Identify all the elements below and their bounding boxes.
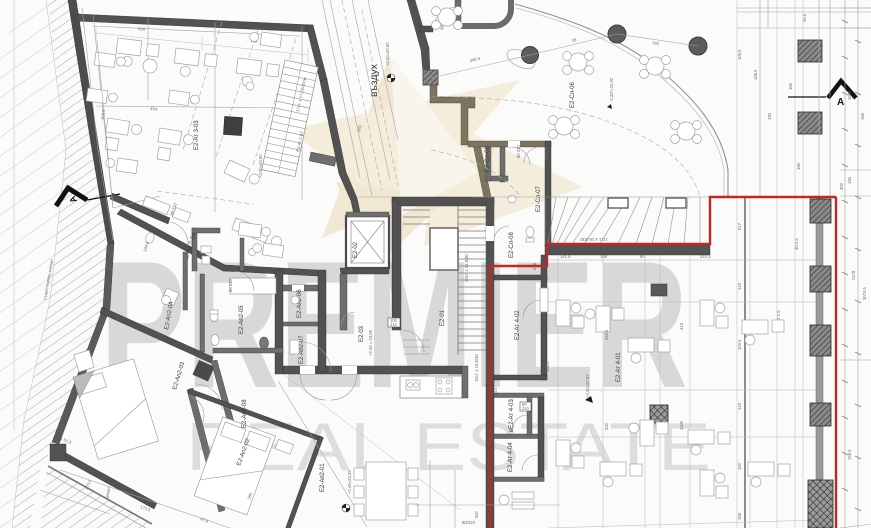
svg-text:160: 160 — [847, 176, 852, 184]
svg-text:A: A — [837, 97, 844, 108]
svg-text:E2-Сл-06: E2-Сл-06 — [570, 81, 576, 108]
svg-text:E2-Ап2-05: E2-Ап2-05 — [239, 305, 245, 334]
svg-text:80 210: 80 210 — [516, 145, 521, 158]
svg-text:454: 454 — [150, 106, 158, 112]
svg-text:90 210: 90 210 — [544, 147, 549, 160]
svg-text:вE2-Ат 4-03: вE2-Ат 4-03 — [509, 399, 515, 432]
svg-text:552.5: 552.5 — [604, 329, 609, 340]
svg-text:168: 168 — [600, 254, 608, 259]
svg-text:E2-02: E2-02 — [353, 241, 359, 258]
svg-text:+2,32=22,92: +2,32=22,92 — [585, 374, 590, 398]
svg-text:20ст. x 16,9/30: 20ст. x 16,9/30 — [464, 254, 469, 282]
svg-text:413: 413 — [679, 322, 684, 330]
svg-text:104.5: 104.5 — [737, 339, 742, 350]
svg-text:162: 162 — [652, 40, 660, 46]
svg-text:210: 210 — [522, 406, 530, 411]
svg-text:143: 143 — [737, 402, 742, 410]
svg-text:252.4: 252.4 — [545, 361, 550, 372]
svg-text:1095: 1095 — [847, 90, 852, 100]
svg-text:17ст. x 16,5/30: 17ст. x 16,5/30 — [580, 237, 608, 242]
svg-text:E2-01: E2-01 — [440, 309, 446, 326]
svg-text:160: 160 — [788, 82, 793, 90]
svg-text:E2-Сл-07: E2-Сл-07 — [536, 185, 542, 212]
svg-text:1100: 1100 — [679, 420, 684, 430]
svg-text:E2-Ап2-08: E2-Ап2-08 — [242, 399, 248, 428]
svg-text:141.5: 141.5 — [560, 254, 571, 259]
svg-text:E2-Ап2-01: E2-Ап2-01 — [320, 463, 326, 492]
svg-text:190: 190 — [767, 112, 772, 120]
svg-text:+0.00=20.60: +0.00=20.60 — [385, 42, 390, 66]
svg-text:310.3: 310.3 — [700, 254, 711, 259]
svg-text:-2,32*=22,92: -2,32*=22,92 — [609, 77, 614, 102]
svg-text:WC: WC — [474, 511, 479, 518]
svg-text:2478: 2478 — [851, 270, 856, 280]
svg-text:15ст. x 16,6/30: 15ст. x 16,6/30 — [474, 354, 479, 382]
svg-text:143: 143 — [737, 282, 742, 290]
svg-text:E2-03: E2-03 — [359, 325, 365, 342]
svg-text:3074.5: 3074.5 — [862, 287, 867, 300]
svg-text:300: 300 — [839, 182, 844, 190]
svg-text:80: 80 — [640, 254, 645, 259]
svg-text:2·1 6: 2·1 6 — [776, 310, 781, 320]
svg-text:90/210: 90/210 — [462, 520, 475, 525]
svg-text:210: 210 — [390, 322, 398, 327]
svg-text:E2-Сл-08: E2-Сл-08 — [509, 231, 515, 258]
svg-text:80 210: 80 210 — [228, 279, 233, 292]
svg-text:517: 517 — [737, 222, 742, 230]
svg-text:158: 158 — [737, 512, 742, 520]
svg-text:332: 332 — [604, 422, 609, 430]
svg-text:30.4 5: 30.4 5 — [794, 238, 799, 250]
svg-text:E2-Ат 4-01: E2-Ат 4-01 — [616, 352, 622, 382]
svg-text:158.5: 158.5 — [847, 449, 852, 460]
svg-text:108.5: 108.5 — [753, 69, 758, 80]
svg-text:+2.49=23,09: +2.49=23,09 — [347, 470, 352, 494]
svg-text:105.5: 105.5 — [737, 49, 742, 60]
svg-text:E2-Ап2-06: E2-Ап2-06 — [297, 289, 303, 318]
svg-text:въздух: въздух — [368, 63, 380, 97]
svg-text:46.5: 46.5 — [802, 13, 807, 22]
svg-text:192: 192 — [737, 462, 742, 470]
svg-text:195: 195 — [860, 112, 865, 120]
svg-text:E2-Ат 4-04: E2-Ат 4-04 — [508, 442, 514, 472]
svg-text:+2.49 = 23,09: +2.49 = 23,09 — [368, 329, 373, 356]
svg-text:190: 190 — [796, 162, 801, 170]
svg-text:320: 320 — [138, 26, 146, 32]
svg-text:133.5: 133.5 — [493, 387, 498, 398]
svg-text:E2-Ат 4-02: E2-Ат 4-02 — [515, 310, 521, 340]
svg-text:E2-Ап2-07: E2-Ап2-07 — [299, 335, 305, 364]
svg-text:E2-Ат 3-03: E2-Ат 3-03 — [194, 120, 200, 150]
